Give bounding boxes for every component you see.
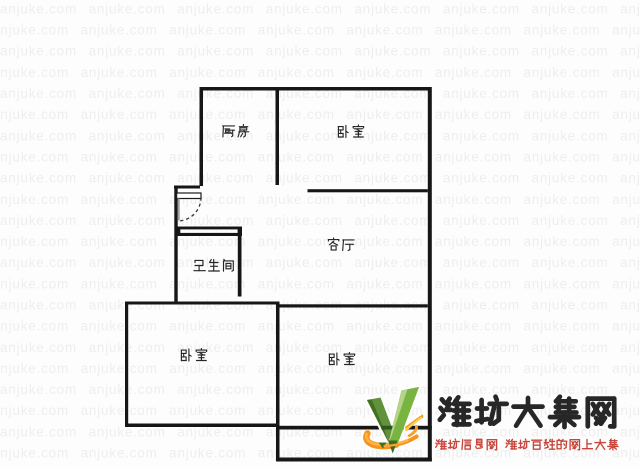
svg-text:anjuke.com anjuke.com anjuke.c: anjuke.com anjuke.com anjuke.com anjuke.…: [0, 65, 640, 80]
svg-text:anjuke.com anjuke.com anjuke.c: anjuke.com anjuke.com anjuke.com anjuke.…: [0, 23, 640, 38]
svg-text:anjuke.com anjuke.com anjuke.c: anjuke.com anjuke.com anjuke.com anjuke.…: [0, 171, 640, 186]
svg-text:anjuke.com anjuke.com anjuke.c: anjuke.com anjuke.com anjuke.com anjuke.…: [0, 1, 640, 16]
svg-text:anjuke.com anjuke.com anjuke.c: anjuke.com anjuke.com anjuke.com anjuke.…: [0, 340, 640, 355]
svg-text:anjuke.com anjuke.com anjuke.c: anjuke.com anjuke.com anjuke.com anjuke.…: [0, 107, 640, 122]
svg-text:anjuke.com anjuke.com anjuke.c: anjuke.com anjuke.com anjuke.com anjuke.…: [0, 276, 640, 291]
svg-text:anjuke.com anjuke.com anjuke.c: anjuke.com anjuke.com anjuke.com anjuke.…: [0, 234, 640, 249]
svg-text:anjuke.com anjuke.com anjuke.c: anjuke.com anjuke.com anjuke.com anjuke.…: [0, 255, 640, 270]
svg-text:anjuke.com anjuke.com anjuke.c: anjuke.com anjuke.com anjuke.com anjuke.…: [0, 192, 640, 207]
svg-text:anjuke.com anjuke.com anjuke.c: anjuke.com anjuke.com anjuke.com anjuke.…: [0, 319, 640, 334]
svg-text:anjuke.com anjuke.com anjuke.c: anjuke.com anjuke.com anjuke.com anjuke.…: [0, 150, 640, 165]
svg-text:anjuke.com anjuke.com anjuke.c: anjuke.com anjuke.com anjuke.com anjuke.…: [0, 213, 640, 228]
svg-text:anjuke.com anjuke.com anjuke.c: anjuke.com anjuke.com anjuke.com anjuke.…: [0, 44, 640, 59]
svg-text:anjuke.com anjuke.com anjuke.c: anjuke.com anjuke.com anjuke.com anjuke.…: [0, 382, 640, 397]
svg-text:anjuke.com anjuke.com anjuke.c: anjuke.com anjuke.com anjuke.com anjuke.…: [0, 361, 640, 376]
svg-text:anjuke.com anjuke.com anjuke.c: anjuke.com anjuke.com anjuke.com anjuke.…: [0, 128, 640, 143]
